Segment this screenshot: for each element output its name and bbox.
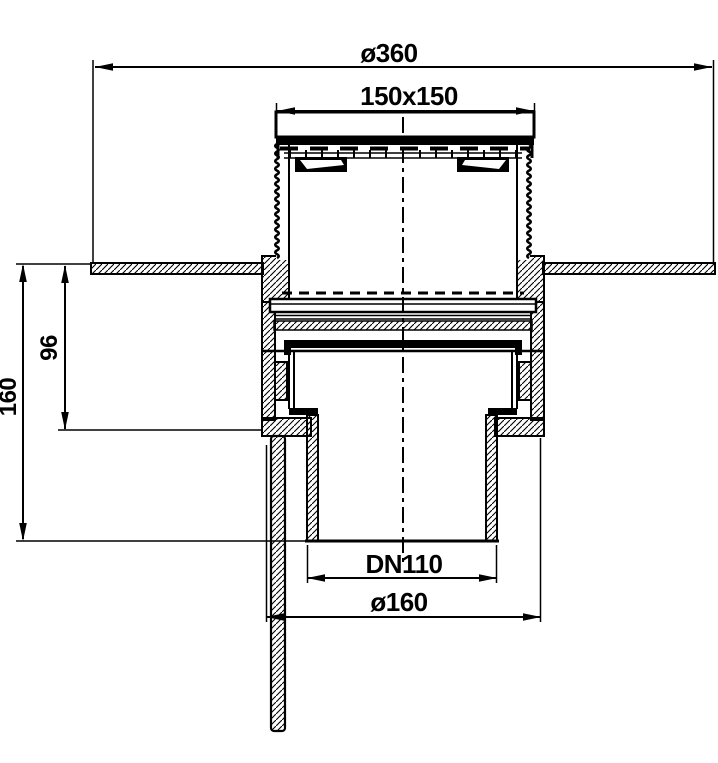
dim-label-total-depth: 160 — [0, 378, 22, 417]
dim-label-flange-diameter: ø360 — [360, 38, 417, 68]
clamp-bolt-left — [275, 362, 287, 400]
clamp-bolt-right — [519, 362, 531, 400]
flange-plate-left — [91, 263, 263, 274]
grate-surface — [276, 137, 534, 145]
flange-plate-right — [543, 263, 715, 274]
dim-label-grate-size: 150x150 — [360, 81, 458, 111]
dim-label-outlet: DN110 — [366, 549, 443, 579]
floor-drain-section-drawing: ø360 150x150 96 160 DN110 — [0, 0, 718, 763]
pipe-wall-left — [307, 415, 318, 541]
grate-clamp-right — [457, 157, 509, 172]
clamping-collar-left — [262, 256, 289, 302]
dim-label-trap-depth: 96 — [36, 335, 63, 361]
body-shoulder-right — [495, 418, 544, 436]
pipe-wall-right — [486, 415, 497, 541]
grate-frame — [276, 112, 534, 145]
dim-label-body-diameter: ø160 — [370, 587, 427, 617]
grate-clamp-left — [295, 157, 347, 172]
riser-wall-left — [275, 144, 289, 260]
membrane-sleeve — [271, 436, 285, 731]
body-shoulder-left — [262, 418, 311, 436]
clamping-collar-right — [517, 256, 544, 302]
riser-wall-right — [517, 144, 531, 260]
technical-drawing-page: ø360 150x150 96 160 DN110 — [0, 0, 718, 763]
